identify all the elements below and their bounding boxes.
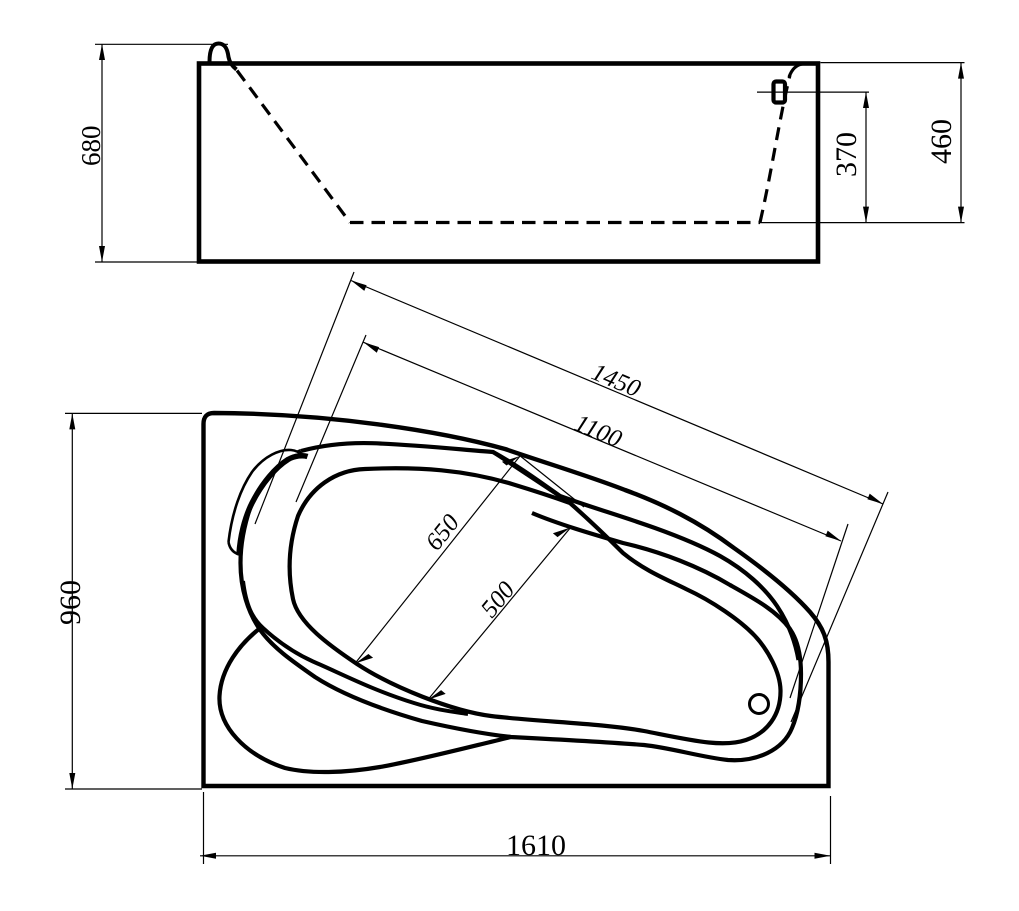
svg-text:680: 680 (76, 126, 106, 167)
svg-text:370: 370 (830, 132, 863, 177)
svg-text:1610: 1610 (506, 829, 566, 862)
svg-text:960: 960 (54, 580, 87, 625)
svg-text:460: 460 (925, 119, 958, 164)
